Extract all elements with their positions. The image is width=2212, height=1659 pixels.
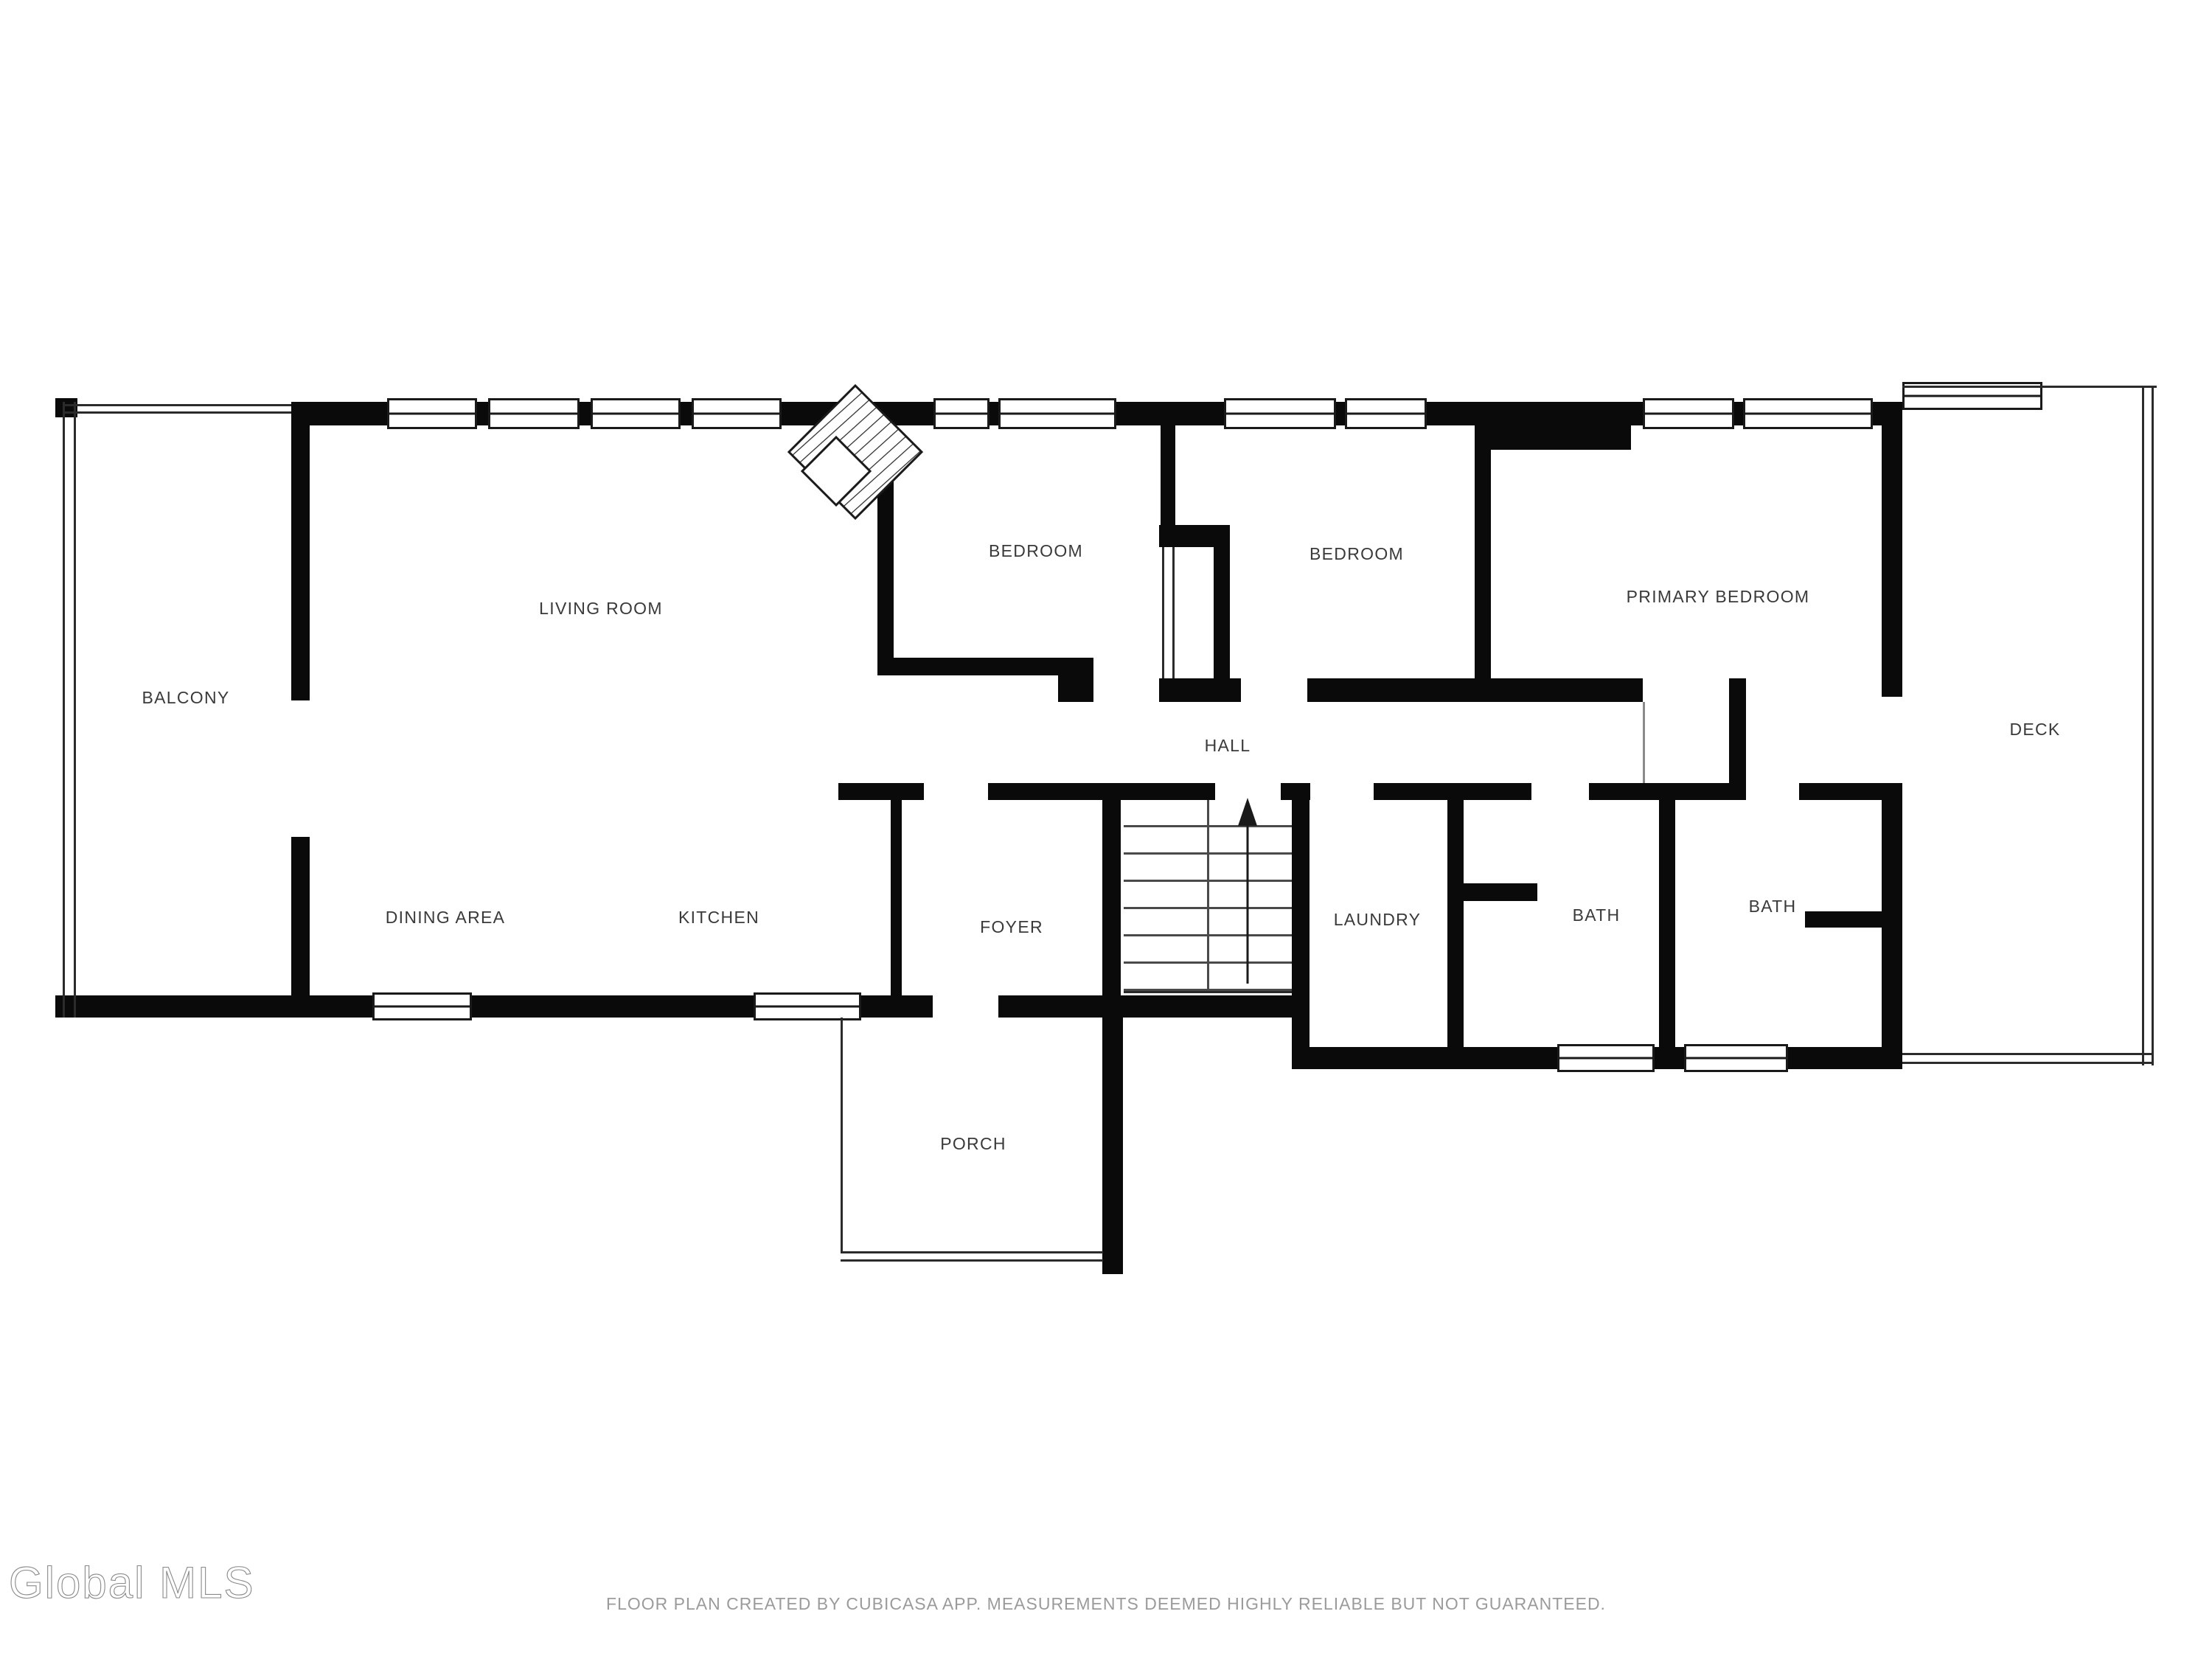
fireplace-icon: [783, 380, 928, 524]
closet-block: [1486, 402, 1631, 450]
window: [1557, 1044, 1655, 1072]
wall-segment: [1159, 678, 1241, 702]
wall-segment: [998, 995, 1310, 1018]
wall-segment: [1292, 800, 1310, 1069]
wall-segment: [838, 783, 924, 800]
wall-segment: [1116, 402, 1224, 425]
wall-stub: [1805, 911, 1888, 928]
staircase-edge: [1124, 991, 1292, 993]
wall-segment: [1475, 425, 1491, 702]
wall-segment: [1631, 402, 1643, 425]
floor-plan: BALCONY LIVING ROOM BEDROOM BEDROOM PRIM…: [0, 0, 2212, 1659]
window: [1684, 1044, 1788, 1072]
wall-segment: [877, 658, 1076, 675]
wall-segment: [1292, 1047, 1557, 1069]
room-label-kitchen: KITCHEN: [678, 908, 759, 928]
stairs-up-arrow-icon: [1231, 798, 1264, 984]
wall-segment: [1799, 783, 1902, 800]
deck-rail: [1902, 1053, 2154, 1055]
deck-rail: [2152, 386, 2154, 1065]
window: [387, 398, 477, 429]
wall-segment: [891, 800, 902, 995]
wall-segment: [291, 837, 310, 1018]
wall-segment: [1058, 658, 1093, 702]
wall-segment: [55, 995, 372, 1018]
wall-segment: [1427, 402, 1486, 425]
window: [692, 398, 782, 429]
room-label-primary-bedroom: PRIMARY BEDROOM: [1627, 587, 1810, 608]
wall-segment: [1447, 800, 1464, 1047]
window: [1345, 398, 1427, 429]
window: [591, 398, 681, 429]
closet-line: [1162, 547, 1164, 678]
balcony-rail: [63, 411, 291, 414]
room-label-foyer: FOYER: [980, 917, 1043, 938]
porch-outline: [841, 1018, 843, 1253]
wall-segment: [988, 783, 1215, 800]
wall-segment: [990, 402, 998, 425]
balcony-rail: [63, 402, 65, 1018]
room-label-bedroom-1: BEDROOM: [989, 541, 1083, 562]
room-label-bedroom-2: BEDROOM: [1310, 544, 1404, 565]
room-label-laundry: LAUNDRY: [1334, 910, 1422, 931]
porch-wall: [1102, 1018, 1123, 1274]
wall-segment: [1882, 800, 1902, 1069]
deck-rail: [1902, 1062, 2154, 1064]
wall-segment: [861, 995, 933, 1018]
wall-segment: [1659, 800, 1675, 1047]
room-label-deck: DECK: [2009, 720, 2060, 740]
wall-segment: [1729, 678, 1746, 800]
global-mls-watermark: Global MLS: [9, 1557, 254, 1608]
room-label-balcony: BALCONY: [142, 688, 229, 709]
window: [488, 398, 580, 429]
porch-outline: [841, 1259, 1103, 1262]
wall-segment: [1102, 783, 1121, 1018]
wall-segment: [1336, 402, 1345, 425]
window: [933, 398, 990, 429]
window: [998, 398, 1116, 429]
balcony-rail: [63, 404, 291, 406]
balcony-rail: [74, 402, 76, 1018]
wall-segment: [1281, 783, 1310, 800]
wall-segment: [1374, 783, 1531, 800]
closet-line: [1172, 547, 1175, 678]
cubicasa-disclaimer: FLOOR PLAN CREATED BY CUBICASA APP. MEAS…: [606, 1594, 1606, 1614]
room-label-living-room: LIVING ROOM: [539, 599, 663, 619]
window: [1743, 398, 1873, 429]
wall-segment: [472, 995, 754, 1018]
wall-segment: [1589, 783, 1746, 800]
wall-segment: [1882, 402, 1902, 697]
wall-segment: [291, 402, 310, 700]
wall-segment: [1734, 402, 1743, 425]
wall-segment: [1159, 525, 1230, 547]
window: [754, 992, 861, 1020]
deck-rail: [1902, 386, 2157, 388]
window: [1643, 398, 1734, 429]
deck-rail: [2142, 386, 2144, 1065]
door-jamb-line: [1643, 702, 1645, 783]
wall-segment: [681, 402, 692, 425]
wall-stub: [1464, 883, 1537, 901]
room-label-bath-2: BATH: [1749, 897, 1797, 917]
room-label-porch: PORCH: [940, 1134, 1006, 1155]
room-label-hall: HALL: [1205, 736, 1251, 757]
window: [1224, 398, 1336, 429]
wall-segment: [1655, 1047, 1684, 1069]
wall-segment: [580, 402, 591, 425]
room-label-dining-area: DINING AREA: [386, 908, 506, 928]
window: [372, 992, 472, 1020]
staircase-divider: [1207, 800, 1209, 991]
wall-segment: [1214, 547, 1230, 678]
wall-segment: [477, 402, 488, 425]
room-label-bath-1: BATH: [1573, 905, 1621, 926]
porch-outline: [841, 1251, 1103, 1253]
